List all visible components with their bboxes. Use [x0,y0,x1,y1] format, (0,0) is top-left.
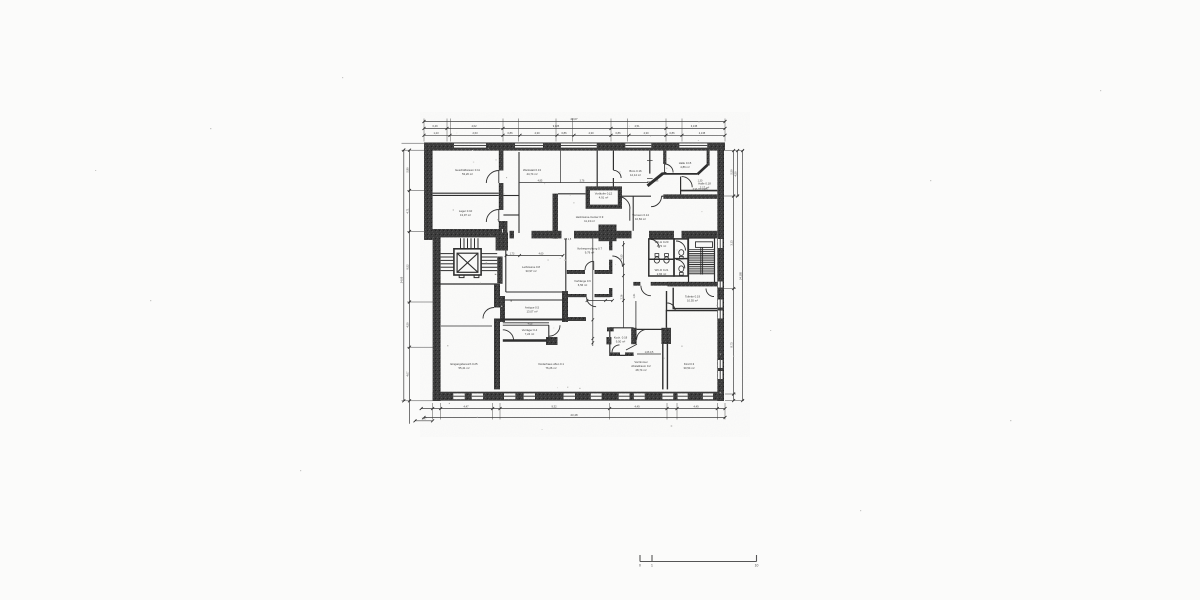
svg-text:1: 1 [651,564,653,568]
svg-text:9,52: 9,52 [405,264,409,270]
svg-text:0: 0 [639,564,641,568]
svg-text:4,50: 4,50 [405,322,409,328]
svg-text:4,07: 4,07 [405,371,409,377]
svg-text:5,80: 5,80 [405,167,409,173]
svg-text:4,71: 4,71 [405,208,409,214]
svg-text:24,06: 24,06 [400,276,404,283]
svg-text:10: 10 [755,564,759,568]
